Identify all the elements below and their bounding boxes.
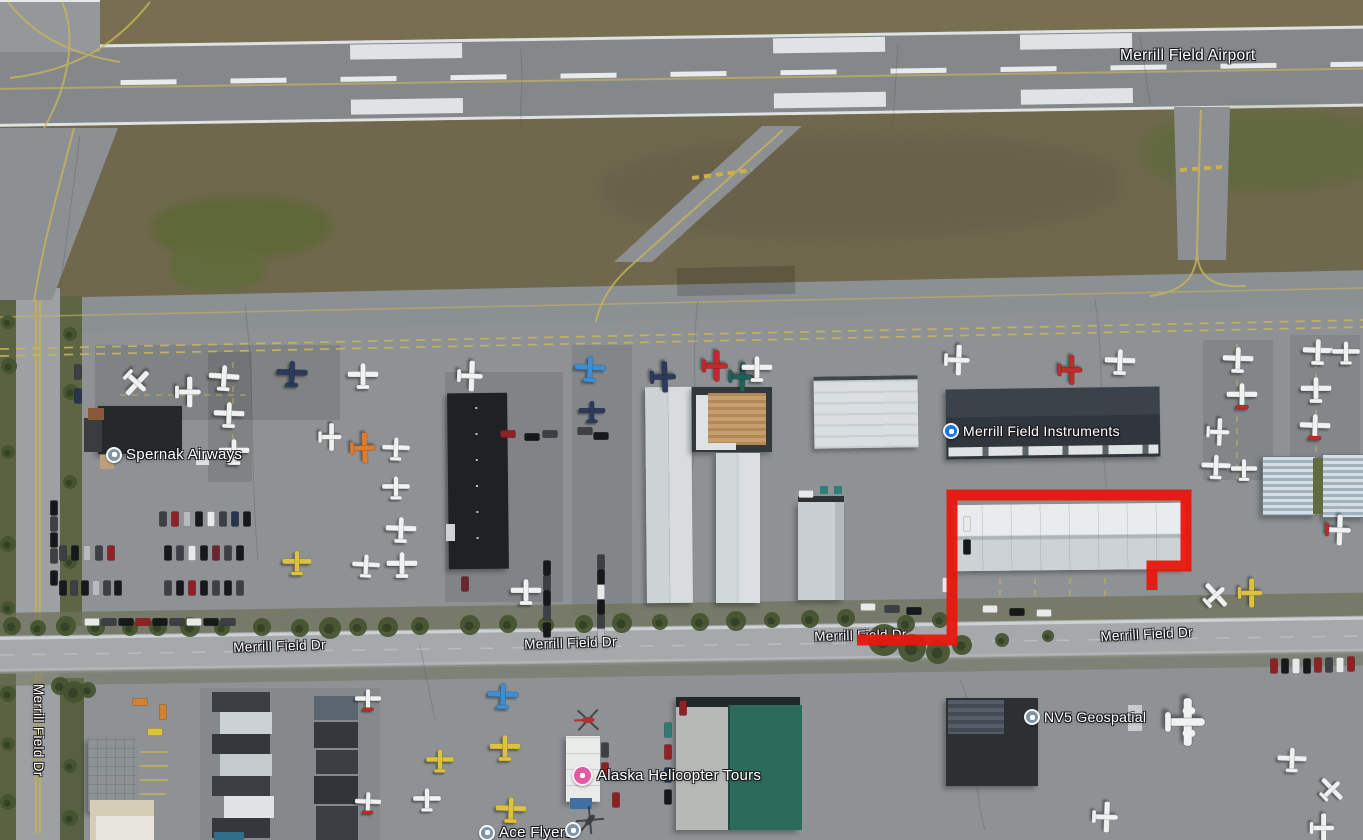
road-label-merrill-field-dr: Merrill Field Dr bbox=[814, 627, 907, 644]
map-label-alaska-helicopter-tours[interactable]: Alaska Helicopter Tours bbox=[572, 765, 761, 786]
map-label-spernak-airways[interactable]: Spernak Airways bbox=[106, 446, 242, 463]
road-label-merrill-field-dr: Merrill Field Dr bbox=[524, 634, 617, 652]
road-label-merrill-field-dr: Merrill Field Dr bbox=[233, 637, 326, 655]
road-label-merrill-field-dr: Merrill Field Dr bbox=[1100, 624, 1193, 644]
poi-icon-nv5-geospatial[interactable] bbox=[1024, 709, 1040, 725]
map-label-merrill-field-airport: Merrill Field Airport bbox=[1120, 47, 1256, 65]
road-label-merrill-field-dr: Merrill Field Dr bbox=[31, 684, 46, 777]
map-label-ace-flyers[interactable]: Ace Flyers bbox=[479, 824, 573, 840]
poi-icon-ace-flyers[interactable] bbox=[479, 825, 495, 840]
label-text: Spernak Airways bbox=[126, 446, 242, 463]
label-text: NV5 Geospatial bbox=[1044, 709, 1146, 725]
poi-icon-spernak-airways[interactable] bbox=[106, 447, 122, 463]
map-label-nv5-geospatial[interactable]: NV5 Geospatial bbox=[1024, 709, 1146, 725]
label-text: Ace Flyers bbox=[499, 824, 573, 840]
label-text: Merrill Field Airport bbox=[1120, 47, 1256, 65]
poi-icon-merrill-field-instruments[interactable] bbox=[943, 423, 959, 439]
satellite-map-canvas[interactable]: Merrill Field AirportSpernak AirwaysMerr… bbox=[0, 0, 1363, 840]
poi-icon-alaska-helicopter-tours[interactable] bbox=[572, 765, 593, 786]
poi-icon-ace-flyers-2[interactable] bbox=[565, 822, 581, 838]
label-text: Merrill Field Instruments bbox=[963, 423, 1120, 439]
map-label-merrill-field-instruments[interactable]: Merrill Field Instruments bbox=[943, 423, 1120, 439]
label-text: Alaska Helicopter Tours bbox=[597, 767, 761, 784]
